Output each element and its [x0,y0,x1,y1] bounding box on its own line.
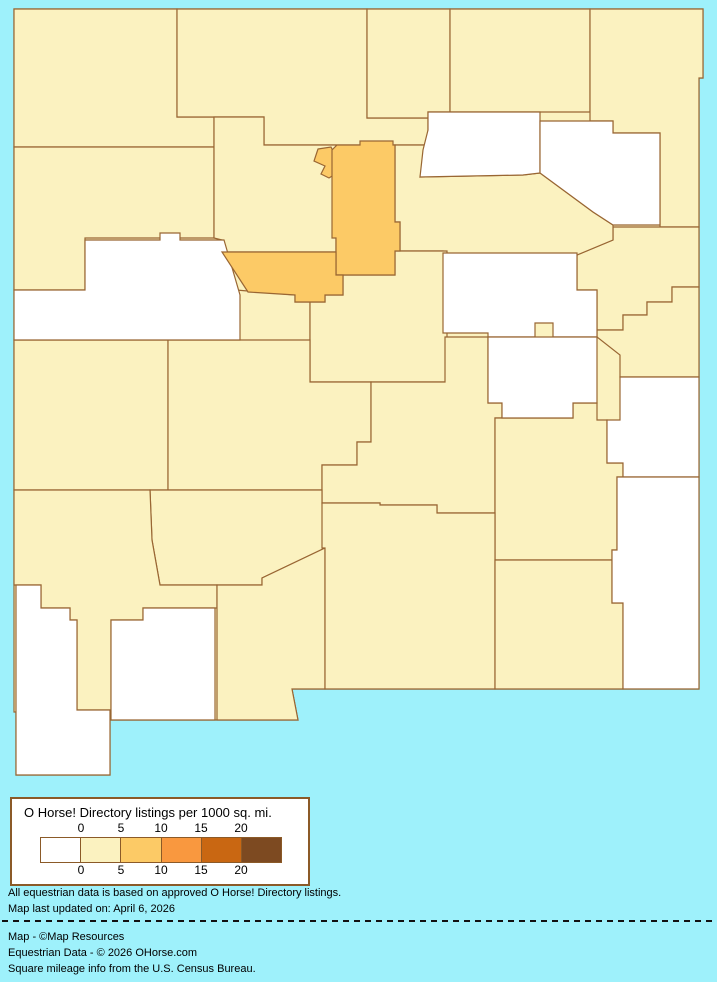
legend-tick: 5 [101,821,141,835]
dashed-divider [2,920,715,922]
legend-color-ramp [40,837,282,863]
county-guadalupe [443,253,597,337]
legend-tick: 0 [61,863,101,877]
legend-swatch-5-10 [120,838,160,862]
county-santa-fe [332,141,400,275]
county-roosevelt [607,377,699,477]
legend-swatch-20-plus [241,838,281,862]
county-lea [612,477,699,689]
county-chaves [495,403,623,560]
county-taos [367,9,450,118]
county-colfax [450,9,590,112]
legend-tick: 10 [141,821,181,835]
legend-swatch-10-15 [161,838,201,862]
legend-tick: 20 [221,821,261,835]
legend-swatch-0 [41,838,80,862]
legend-swatch-15-20 [201,838,241,862]
screen-background: O Horse! Directory listings per 1000 sq.… [0,0,717,982]
data-disclaimer-note: All equestrian data is based on approved… [8,887,341,899]
legend-tick: 0 [61,821,101,835]
legend-tick: 10 [141,863,181,877]
legend-swatch-0-5 [80,838,120,862]
legend-title: O Horse! Directory listings per 1000 sq.… [24,805,272,820]
county-catron [14,340,168,490]
legend-ticks-top: 0 5 10 15 20 [12,821,308,835]
county-mora [420,112,540,177]
legend-tick: 15 [181,821,221,835]
legend-ticks-bottom: 0 5 10 15 20 [12,863,308,877]
legend-box: O Horse! Directory listings per 1000 sq.… [10,797,310,886]
legend-tick: 5 [101,863,141,877]
new-mexico-county-map [0,0,717,790]
county-otero [322,503,495,689]
census-credit: Square mileage info from the U.S. Census… [8,963,256,975]
legend-tick: 20 [221,863,261,877]
county-luna [111,608,215,720]
legend-tick: 15 [181,863,221,877]
last-updated-note: Map last updated on: April 6, 2026 [8,903,175,915]
map-copyright-credit: Map - ©Map Resources [8,931,124,943]
county-eddy [495,560,623,689]
data-copyright-credit: Equestrian Data - © 2026 OHorse.com [8,947,197,959]
